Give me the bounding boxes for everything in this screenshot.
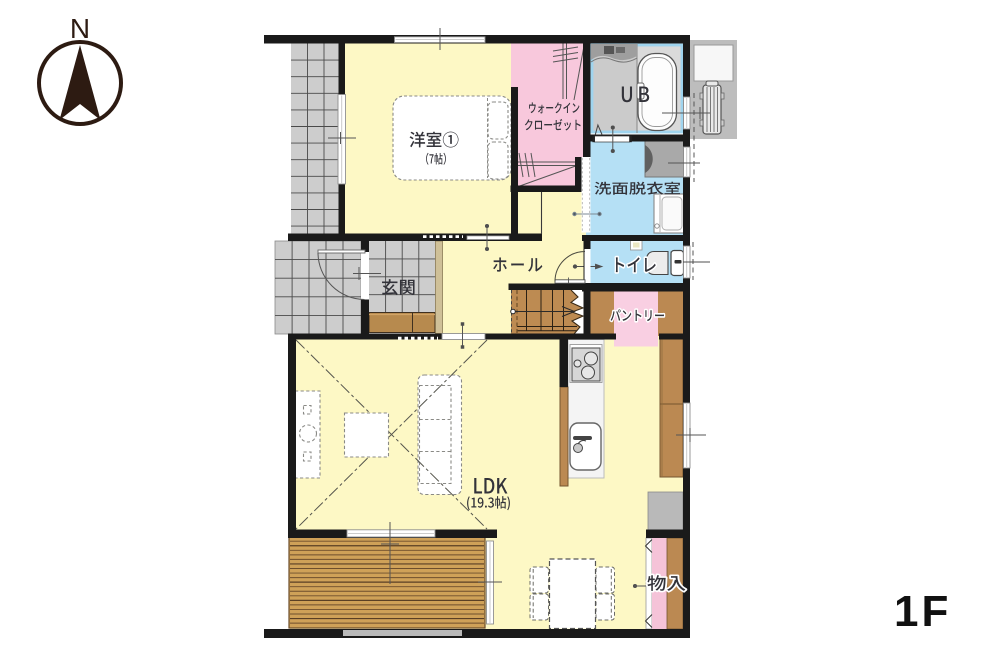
svg-text:N: N <box>70 13 90 44</box>
svg-text:1F: 1F <box>894 587 951 636</box>
